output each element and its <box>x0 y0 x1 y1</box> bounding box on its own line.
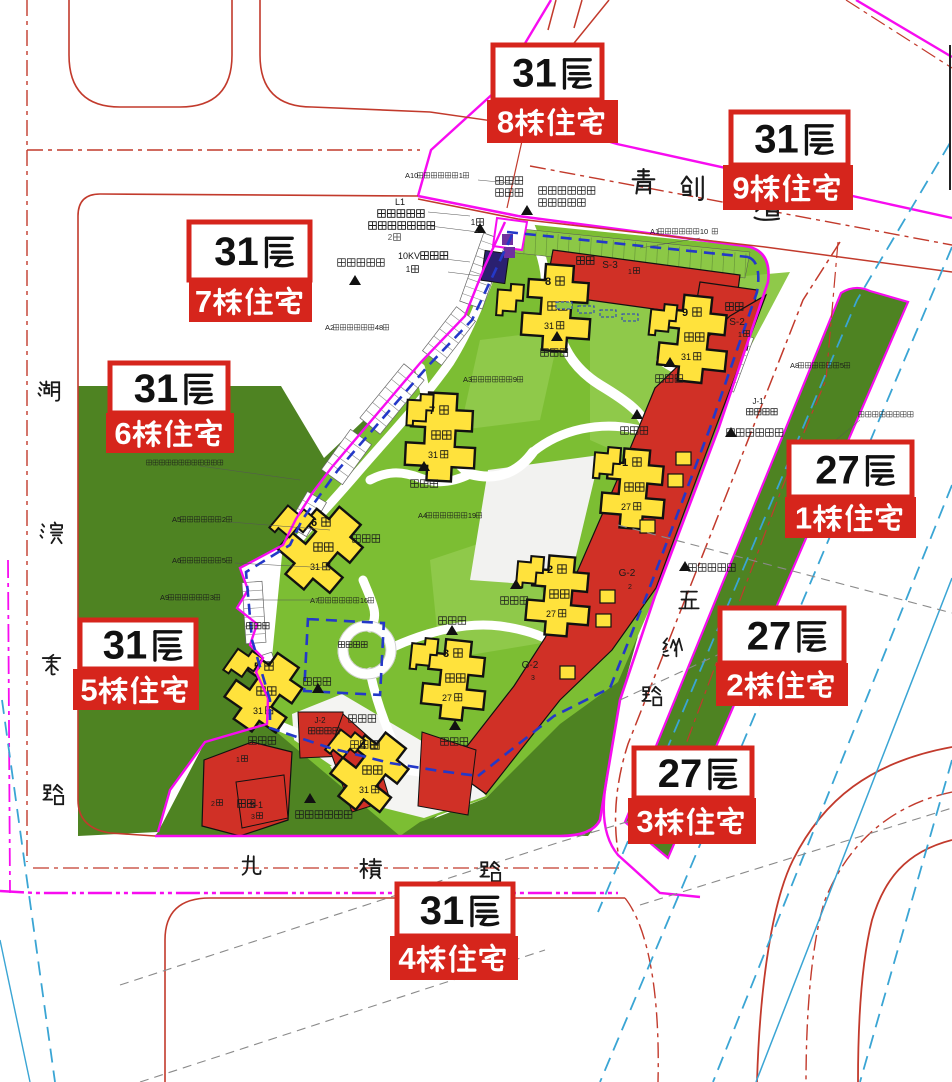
svg-text:J-2: J-2 <box>314 716 326 725</box>
svg-text:J-1: J-1 <box>752 397 764 406</box>
svg-text:27: 27 <box>658 752 703 796</box>
svg-text:31: 31 <box>512 52 557 96</box>
svg-text:L1: L1 <box>395 197 405 207</box>
svg-text:3: 3 <box>251 814 255 821</box>
svg-text:A1: A1 <box>650 227 659 236</box>
svg-text:27: 27 <box>747 615 792 659</box>
svg-text:31: 31 <box>420 889 465 933</box>
svg-text:6: 6 <box>114 416 131 451</box>
svg-text:31: 31 <box>214 230 259 274</box>
svg-text:S-2: S-2 <box>729 317 745 328</box>
svg-text:A2: A2 <box>325 323 334 332</box>
svg-text:7: 7 <box>195 284 212 319</box>
svg-text:A10: A10 <box>405 171 418 180</box>
svg-text:3: 3 <box>636 804 653 839</box>
svg-text:1: 1 <box>406 265 411 274</box>
svg-text:31: 31 <box>754 118 799 162</box>
svg-text:2: 2 <box>388 233 393 242</box>
svg-text:1: 1 <box>628 269 632 276</box>
svg-text:31: 31 <box>134 367 179 411</box>
svg-text:1: 1 <box>738 332 742 339</box>
svg-text:1: 1 <box>471 218 476 227</box>
svg-text:31: 31 <box>253 706 263 716</box>
svg-text:G-2: G-2 <box>619 568 636 579</box>
svg-text:3: 3 <box>210 593 214 602</box>
svg-text:31: 31 <box>544 321 554 331</box>
svg-text:27: 27 <box>546 609 556 619</box>
svg-text:10: 10 <box>700 227 708 236</box>
svg-text:A7: A7 <box>310 596 319 605</box>
svg-text:19: 19 <box>468 511 476 520</box>
svg-text:1: 1 <box>622 457 628 469</box>
svg-text:A4: A4 <box>418 511 427 520</box>
svg-text:8: 8 <box>497 105 514 140</box>
svg-text:S-3: S-3 <box>602 260 618 271</box>
svg-text:5: 5 <box>80 673 97 708</box>
svg-text:5: 5 <box>222 556 226 565</box>
svg-text:27: 27 <box>442 693 452 703</box>
svg-text:1: 1 <box>795 501 812 536</box>
svg-text:16: 16 <box>360 596 368 605</box>
svg-text:27: 27 <box>815 449 860 493</box>
svg-text:2: 2 <box>222 515 226 524</box>
svg-text:2: 2 <box>211 801 215 808</box>
svg-text:9: 9 <box>682 307 688 319</box>
svg-text:48: 48 <box>375 323 383 332</box>
svg-text:A5: A5 <box>172 515 181 524</box>
svg-text:9: 9 <box>513 375 517 384</box>
svg-text:2: 2 <box>628 584 632 591</box>
svg-text:1: 1 <box>459 171 463 180</box>
svg-text:4: 4 <box>398 941 416 976</box>
svg-text:A6: A6 <box>172 556 181 565</box>
svg-text:6: 6 <box>311 517 317 529</box>
svg-text:3: 3 <box>443 648 449 660</box>
svg-text:31: 31 <box>359 785 369 795</box>
svg-text:A9: A9 <box>160 593 169 602</box>
svg-text:31: 31 <box>428 450 438 460</box>
svg-text:31: 31 <box>681 352 691 362</box>
svg-text:7: 7 <box>429 405 435 417</box>
svg-text:9: 9 <box>732 171 749 206</box>
svg-text:8: 8 <box>545 276 551 288</box>
svg-text:5: 5 <box>840 361 844 370</box>
svg-text:2: 2 <box>726 668 743 703</box>
svg-text:G-2: G-2 <box>522 660 539 671</box>
svg-text:2: 2 <box>547 564 553 576</box>
svg-text:1: 1 <box>236 757 240 764</box>
svg-text:27: 27 <box>621 502 631 512</box>
svg-text:A8: A8 <box>790 361 799 370</box>
svg-text:4: 4 <box>360 740 367 752</box>
svg-text:3: 3 <box>531 675 535 682</box>
svg-text:31: 31 <box>103 624 148 668</box>
svg-text:10KV: 10KV <box>398 251 420 261</box>
svg-text:A3: A3 <box>463 375 472 384</box>
